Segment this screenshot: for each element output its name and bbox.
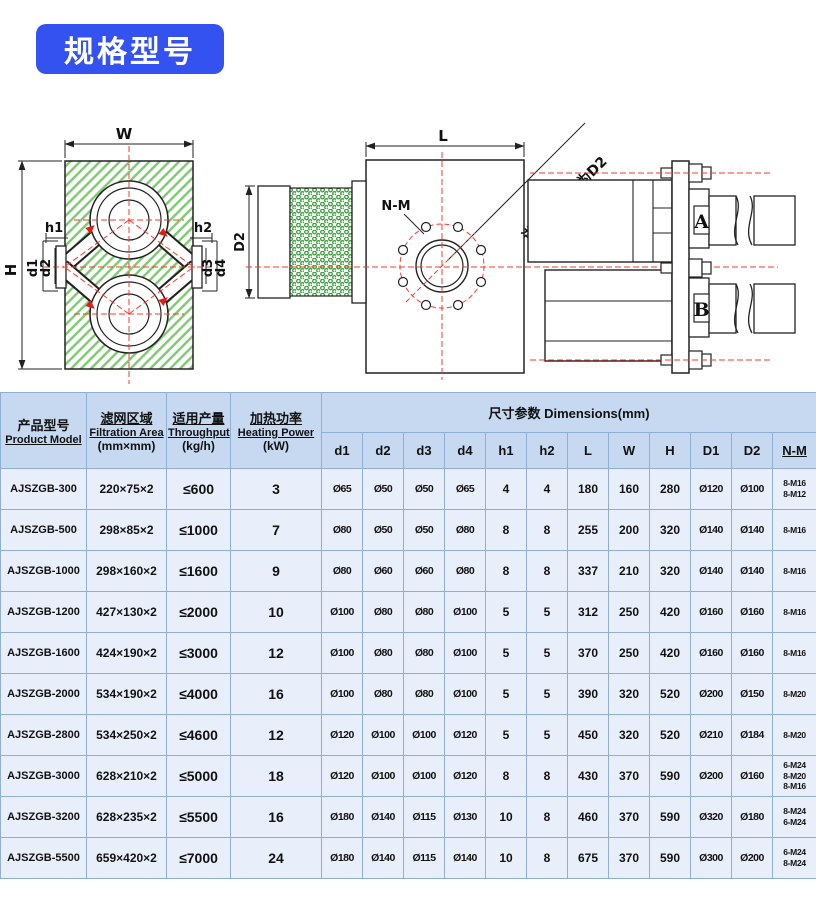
cell-product-model: AJSZGB-500 [1,510,87,551]
cell-W: 370 [609,756,650,797]
cell-D1: Ø160 [691,633,732,674]
cell-filtration-area: 534×250×2 [87,715,167,756]
cell-throughput: ≤600 [167,469,231,510]
cell-H: 520 [650,674,691,715]
cell-d1: Ø120 [322,715,363,756]
cell-h2: 4 [527,469,568,510]
cell-heating-power: 3 [231,469,322,510]
table-row: AJSZGB-2000 534×190×2 ≤4000 16 Ø100 Ø80 … [1,674,816,715]
cell-D2: Ø140 [732,510,773,551]
throughput-zh: 适用产量 [168,408,229,427]
cell-D2: Ø140 [732,551,773,592]
spec-table: 产品型号 Product Model 滤网区域 Filtration Area … [0,392,816,879]
cell-heating-power: 16 [231,797,322,838]
cell-d3: Ø50 [404,469,445,510]
cell-heating-power: 24 [231,838,322,879]
cell-d2: Ø100 [363,756,404,797]
cell-L: 675 [568,838,609,879]
cell-d3: Ø100 [404,715,445,756]
cell-L: 450 [568,715,609,756]
cell-d2: Ø80 [363,633,404,674]
cell-h2: 5 [527,674,568,715]
dim-label-W: W [116,125,133,143]
cell-D1: Ø300 [691,838,732,879]
cell-H: 590 [650,797,691,838]
cell-d1: Ø65 [322,469,363,510]
dim-label-d4: d4 [214,259,229,277]
table-body: AJSZGB-300 220×75×2 ≤600 3 Ø65 Ø50 Ø50 Ø… [1,469,816,879]
cell-h2: 5 [527,592,568,633]
cell-h2: 8 [527,551,568,592]
front-view-drawing: W H h1 h2 d1 d2 d3 d4 [2,125,229,384]
cell-D2: Ø200 [732,838,773,879]
heating-unit: (kW) [232,439,320,453]
cylinder-b-label: B [693,299,709,321]
dim-label-H: H [2,264,20,277]
cell-filtration-area: 628×210×2 [87,756,167,797]
mounting-plate [672,161,689,373]
col-header-W: W [609,433,650,469]
cell-d4: Ø100 [445,592,486,633]
cell-d1: Ø100 [322,633,363,674]
cell-h2: 5 [527,715,568,756]
cell-d3: Ø60 [404,551,445,592]
cell-d2: Ø100 [363,715,404,756]
cell-throughput: ≤4600 [167,715,231,756]
cell-d3: Ø100 [404,756,445,797]
cell-h1: 4 [486,469,527,510]
cell-throughput: ≤5000 [167,756,231,797]
cell-throughput: ≤4000 [167,674,231,715]
cell-h1: 8 [486,756,527,797]
cell-d1: Ø80 [322,510,363,551]
cell-H: 590 [650,756,691,797]
cell-d2: Ø140 [363,797,404,838]
cell-product-model: AJSZGB-3000 [1,756,87,797]
cell-N-M: 8-M24 6-M24 [773,797,816,838]
col-header-D1: D1 [691,433,732,469]
cell-W: 370 [609,797,650,838]
cell-N-M: 8-M20 [773,674,816,715]
filtration-unit: (mm×mm) [88,439,165,453]
table-row: AJSZGB-1600 424×190×2 ≤3000 12 Ø100 Ø80 … [1,633,816,674]
throughput-unit: (kg/h) [168,439,229,453]
cell-D1: Ø320 [691,797,732,838]
cell-h2: 5 [527,633,568,674]
cell-product-model: AJSZGB-300 [1,469,87,510]
cell-h1: 5 [486,633,527,674]
cell-h1: 8 [486,551,527,592]
cell-throughput: ≤1600 [167,551,231,592]
cell-d3: Ø50 [404,510,445,551]
cell-h2: 8 [527,756,568,797]
bolt-spec-label: N-M [381,199,410,214]
cell-L: 337 [568,551,609,592]
cell-h1: 8 [486,510,527,551]
cell-product-model: AJSZGB-2800 [1,715,87,756]
heating-zh: 加热功率 [232,408,320,427]
cell-heating-power: 18 [231,756,322,797]
dim-label-h1: h1 [45,221,63,236]
cell-D2: Ø100 [732,469,773,510]
table-row: AJSZGB-3000 628×210×2 ≤5000 18 Ø120 Ø100… [1,756,816,797]
cell-N-M: 6-M24 8-M24 [773,838,816,879]
cell-D2: Ø180 [732,797,773,838]
cell-L: 460 [568,797,609,838]
col-header-dimensions: 尺寸参数 Dimensions(mm) [322,393,816,433]
cell-L: 430 [568,756,609,797]
cell-L: 255 [568,510,609,551]
cell-heating-power: 10 [231,592,322,633]
cell-H: 280 [650,469,691,510]
cell-N-M: 8-M16 [773,633,816,674]
cell-throughput: ≤1000 [167,510,231,551]
cell-d2: Ø140 [363,838,404,879]
col-header-product-model: 产品型号 Product Model [1,393,87,469]
cell-N-M: 8-M20 [773,715,816,756]
cell-d2: Ø50 [363,510,404,551]
cell-d3: Ø80 [404,674,445,715]
cell-d4: Ø80 [445,510,486,551]
cell-throughput: ≤3000 [167,633,231,674]
cell-filtration-area: 220×75×2 [87,469,167,510]
cell-heating-power: 12 [231,633,322,674]
cell-product-model: AJSZGB-1600 [1,633,87,674]
cell-N-M: 6-M24 8-M20 8-M16 [773,756,816,797]
side-view-drawing: N-M 进口D1出口为D2 L D2 [233,123,778,380]
dim-label-d2: d2 [39,259,54,277]
cell-d2: Ø80 [363,674,404,715]
cell-throughput: ≤5500 [167,797,231,838]
cell-d1: Ø100 [322,674,363,715]
page-title: 规格型号 [36,24,224,74]
cell-D2: Ø184 [732,715,773,756]
cell-d4: Ø100 [445,633,486,674]
cell-D2: Ø150 [732,674,773,715]
cell-d1: Ø100 [322,592,363,633]
col-header-d2: d2 [363,433,404,469]
cell-h1: 10 [486,797,527,838]
cylinder-a-body [528,180,672,262]
cell-H: 590 [650,838,691,879]
table-row: AJSZGB-5500 659×420×2 ≤7000 24 Ø180 Ø140… [1,838,816,879]
cell-d4: Ø65 [445,469,486,510]
product-model-en: Product Model [2,434,85,446]
col-header-heating-power: 加热功率 Heating Power (kW) [231,393,322,469]
cell-N-M: 8-M16 [773,551,816,592]
cell-N-M: 8-M16 8-M12 [773,469,816,510]
dim-label-h2: h2 [194,221,212,236]
cell-D1: Ø200 [691,756,732,797]
cell-D2: Ø160 [732,756,773,797]
cell-H: 420 [650,633,691,674]
cell-h2: 8 [527,510,568,551]
cell-D1: Ø210 [691,715,732,756]
col-header-h1: h1 [486,433,527,469]
cell-d3: Ø115 [404,797,445,838]
dim-label-L: L [438,127,448,145]
cell-d1: Ø180 [322,838,363,879]
col-header-d1: d1 [322,433,363,469]
filtration-zh: 滤网区域 [88,408,165,427]
cell-h1: 5 [486,715,527,756]
cartridge-cap [258,186,290,298]
cell-H: 520 [650,715,691,756]
cell-D1: Ø160 [691,592,732,633]
cell-D2: Ø160 [732,633,773,674]
table-row: AJSZGB-1000 298×160×2 ≤1600 9 Ø80 Ø60 Ø6… [1,551,816,592]
cell-h2: 8 [527,838,568,879]
col-header-d3: d3 [404,433,445,469]
cell-d4: Ø80 [445,551,486,592]
product-model-zh: 产品型号 [2,415,85,434]
breaker-plate [290,188,352,296]
col-header-D2: D2 [732,433,773,469]
table-row: AJSZGB-3200 628×235×2 ≤5500 16 Ø180 Ø140… [1,797,816,838]
cell-D1: Ø200 [691,674,732,715]
cell-D1: Ø140 [691,551,732,592]
cell-W: 200 [609,510,650,551]
cell-d3: Ø80 [404,592,445,633]
cell-d2: Ø50 [363,469,404,510]
cell-L: 390 [568,674,609,715]
cell-filtration-area: 298×160×2 [87,551,167,592]
cell-heating-power: 12 [231,715,322,756]
cylinder-b-body [545,270,672,361]
table-row: AJSZGB-2800 534×250×2 ≤4600 12 Ø120 Ø100… [1,715,816,756]
cell-heating-power: 7 [231,510,322,551]
cell-h1: 5 [486,592,527,633]
cell-d4: Ø130 [445,797,486,838]
cell-W: 160 [609,469,650,510]
cell-product-model: AJSZGB-1200 [1,592,87,633]
cell-d2: Ø80 [363,592,404,633]
cell-D1: Ø140 [691,510,732,551]
cell-filtration-area: 659×420×2 [87,838,167,879]
cell-N-M: 8-M16 [773,592,816,633]
col-header-H: H [650,433,691,469]
cell-D2: Ø160 [732,592,773,633]
col-header-filtration-area: 滤网区域 Filtration Area (mm×mm) [87,393,167,469]
technical-drawings: W H h1 h2 d1 d2 d3 d4 N-M 进口D1出口为D2 [0,118,816,390]
cell-d1: Ø80 [322,551,363,592]
cell-W: 250 [609,633,650,674]
cell-L: 370 [568,633,609,674]
cell-H: 420 [650,592,691,633]
col-header-N-M: N-M [773,433,816,469]
cell-d1: Ø180 [322,797,363,838]
cell-W: 370 [609,838,650,879]
cell-D1: Ø120 [691,469,732,510]
cell-d1: Ø120 [322,756,363,797]
cell-d4: Ø120 [445,756,486,797]
cell-h1: 5 [486,674,527,715]
col-header-d4: d4 [445,433,486,469]
cell-filtration-area: 534×190×2 [87,674,167,715]
cell-H: 320 [650,510,691,551]
cell-heating-power: 9 [231,551,322,592]
cell-product-model: AJSZGB-1000 [1,551,87,592]
cell-product-model: AJSZGB-2000 [1,674,87,715]
cell-filtration-area: 427×130×2 [87,592,167,633]
table-row: AJSZGB-1200 427×130×2 ≤2000 10 Ø100 Ø80 … [1,592,816,633]
cylinder-a-label: A [693,211,709,233]
cell-L: 180 [568,469,609,510]
col-header-throughput: 适用产量 Throughput (kg/h) [167,393,231,469]
cell-filtration-area: 424×190×2 [87,633,167,674]
table-row: AJSZGB-300 220×75×2 ≤600 3 Ø65 Ø50 Ø50 Ø… [1,469,816,510]
col-header-L: L [568,433,609,469]
cell-throughput: ≤7000 [167,838,231,879]
dim-label-D2: D2 [233,232,248,252]
cell-h2: 8 [527,797,568,838]
cell-H: 320 [650,551,691,592]
cell-throughput: ≤2000 [167,592,231,633]
cell-W: 320 [609,715,650,756]
col-header-h2: h2 [527,433,568,469]
heating-en: Heating Power [232,427,320,439]
cell-d4: Ø120 [445,715,486,756]
cell-d4: Ø140 [445,838,486,879]
cell-heating-power: 16 [231,674,322,715]
cell-product-model: AJSZGB-3200 [1,797,87,838]
filtration-en: Filtration Area [88,427,165,439]
cell-product-model: AJSZGB-5500 [1,838,87,879]
cell-filtration-area: 298×85×2 [87,510,167,551]
cell-W: 320 [609,674,650,715]
cell-h1: 10 [486,838,527,879]
cell-L: 312 [568,592,609,633]
cell-W: 210 [609,551,650,592]
cell-filtration-area: 628×235×2 [87,797,167,838]
cell-W: 250 [609,592,650,633]
cell-N-M: 8-M16 [773,510,816,551]
throughput-en: Throughput [168,427,229,439]
cell-d3: Ø115 [404,838,445,879]
cell-d2: Ø60 [363,551,404,592]
table-row: AJSZGB-500 298×85×2 ≤1000 7 Ø80 Ø50 Ø50 … [1,510,816,551]
cell-d3: Ø80 [404,633,445,674]
cartridge-flange [352,181,366,303]
cell-d4: Ø100 [445,674,486,715]
